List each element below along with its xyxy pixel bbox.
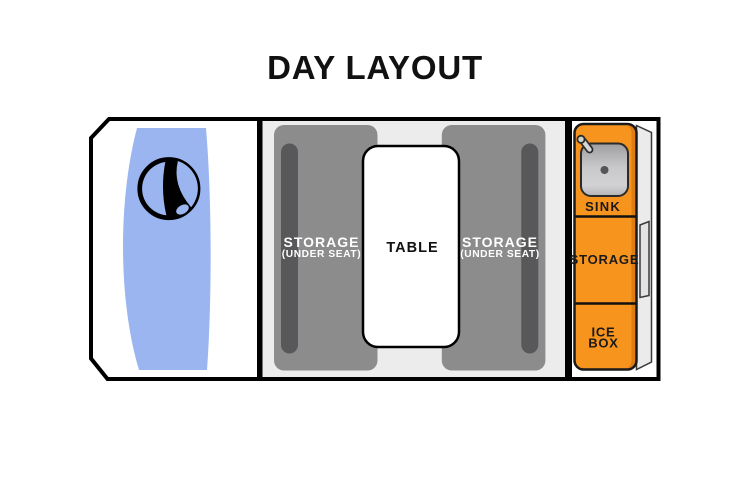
svg-text:DAY LAYOUT: DAY LAYOUT bbox=[267, 49, 483, 86]
svg-text:(UNDER SEAT): (UNDER SEAT) bbox=[460, 249, 539, 260]
svg-text:SINK: SINK bbox=[585, 199, 621, 214]
svg-text:(UNDER SEAT): (UNDER SEAT) bbox=[282, 249, 361, 260]
svg-text:BOX: BOX bbox=[588, 336, 619, 351]
svg-text:STORAGE: STORAGE bbox=[284, 234, 360, 250]
svg-text:TABLE: TABLE bbox=[386, 240, 438, 256]
svg-text:STORAGE: STORAGE bbox=[462, 234, 538, 250]
svg-text:STORAGE: STORAGE bbox=[570, 252, 640, 267]
